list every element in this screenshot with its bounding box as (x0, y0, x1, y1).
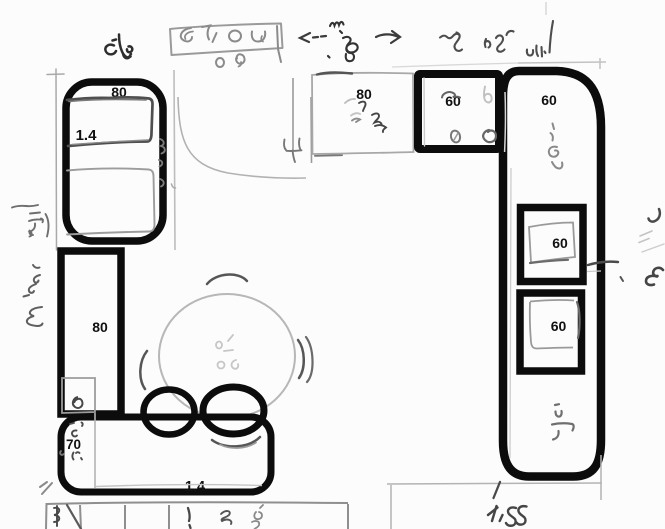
svg-text:80: 80 (92, 319, 108, 335)
svg-text:70: 70 (66, 437, 81, 452)
svg-text:60: 60 (551, 318, 567, 334)
svg-text:1.4: 1.4 (185, 479, 205, 495)
svg-text:60: 60 (445, 93, 461, 109)
svg-text:1.4: 1.4 (76, 127, 98, 144)
svg-text:60: 60 (541, 92, 557, 108)
svg-text:60: 60 (552, 235, 568, 251)
svg-text:80: 80 (356, 86, 372, 102)
